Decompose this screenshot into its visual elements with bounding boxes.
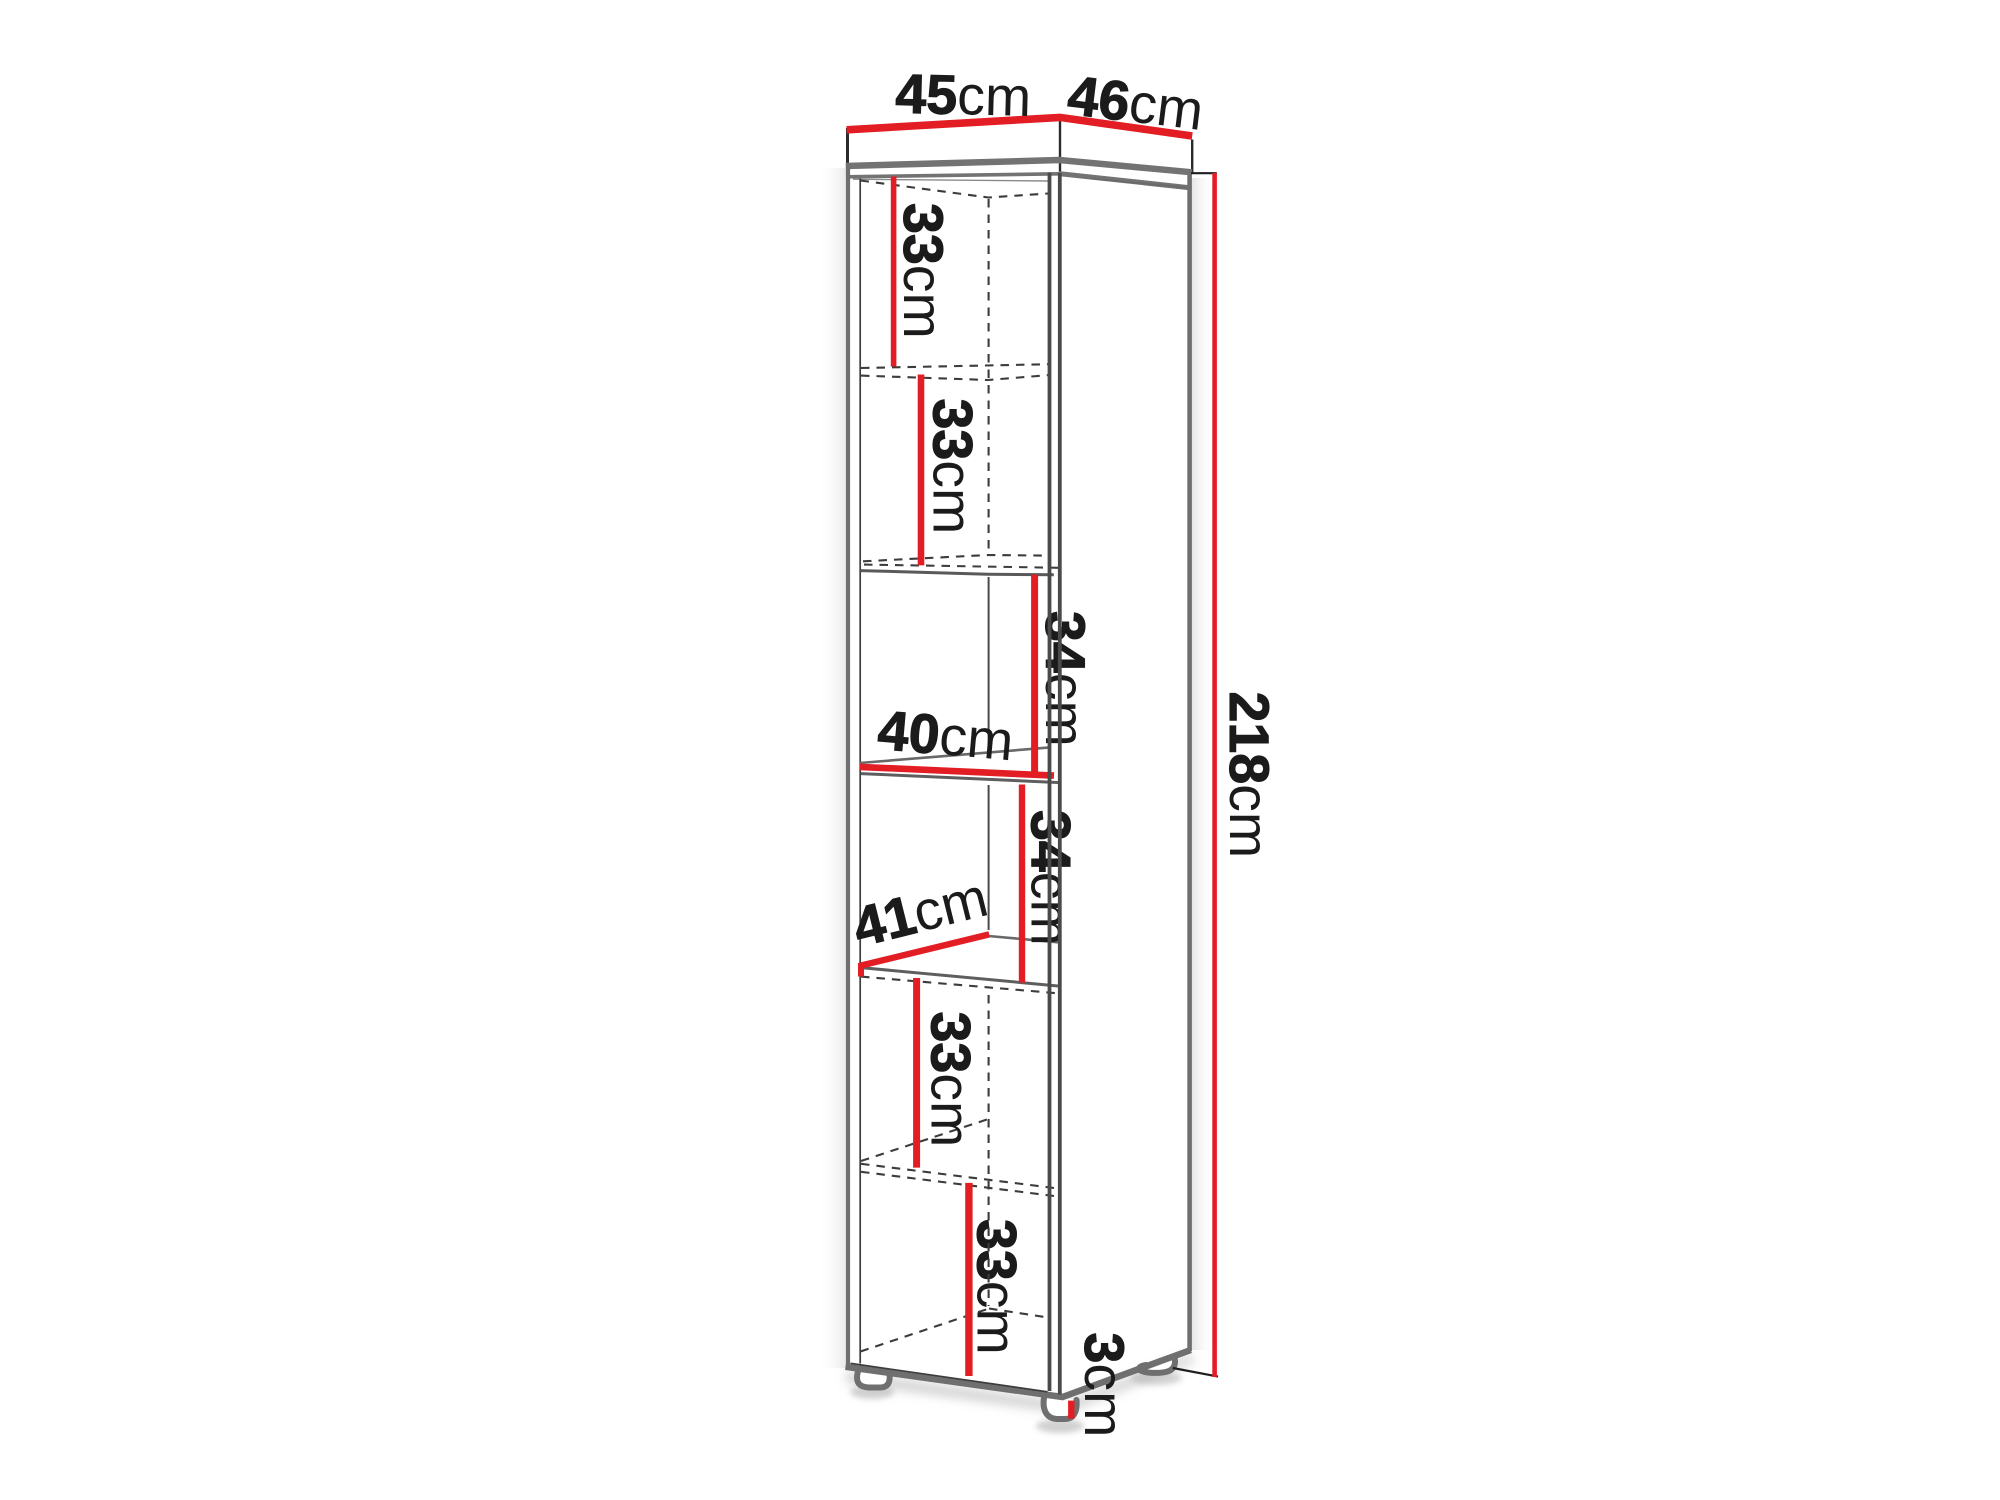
svg-text:33cm: 33cm xyxy=(966,1219,1028,1355)
svg-text:33cm: 33cm xyxy=(920,1012,982,1148)
svg-text:34cm: 34cm xyxy=(1034,611,1096,747)
svg-text:40cm: 40cm xyxy=(875,699,1016,773)
svg-text:218cm: 218cm xyxy=(1218,692,1280,859)
svg-text:33cm: 33cm xyxy=(922,399,984,535)
svg-text:33cm: 33cm xyxy=(892,203,954,339)
svg-text:45cm: 45cm xyxy=(895,63,1032,129)
svg-text:3cm: 3cm xyxy=(1073,1333,1135,1438)
